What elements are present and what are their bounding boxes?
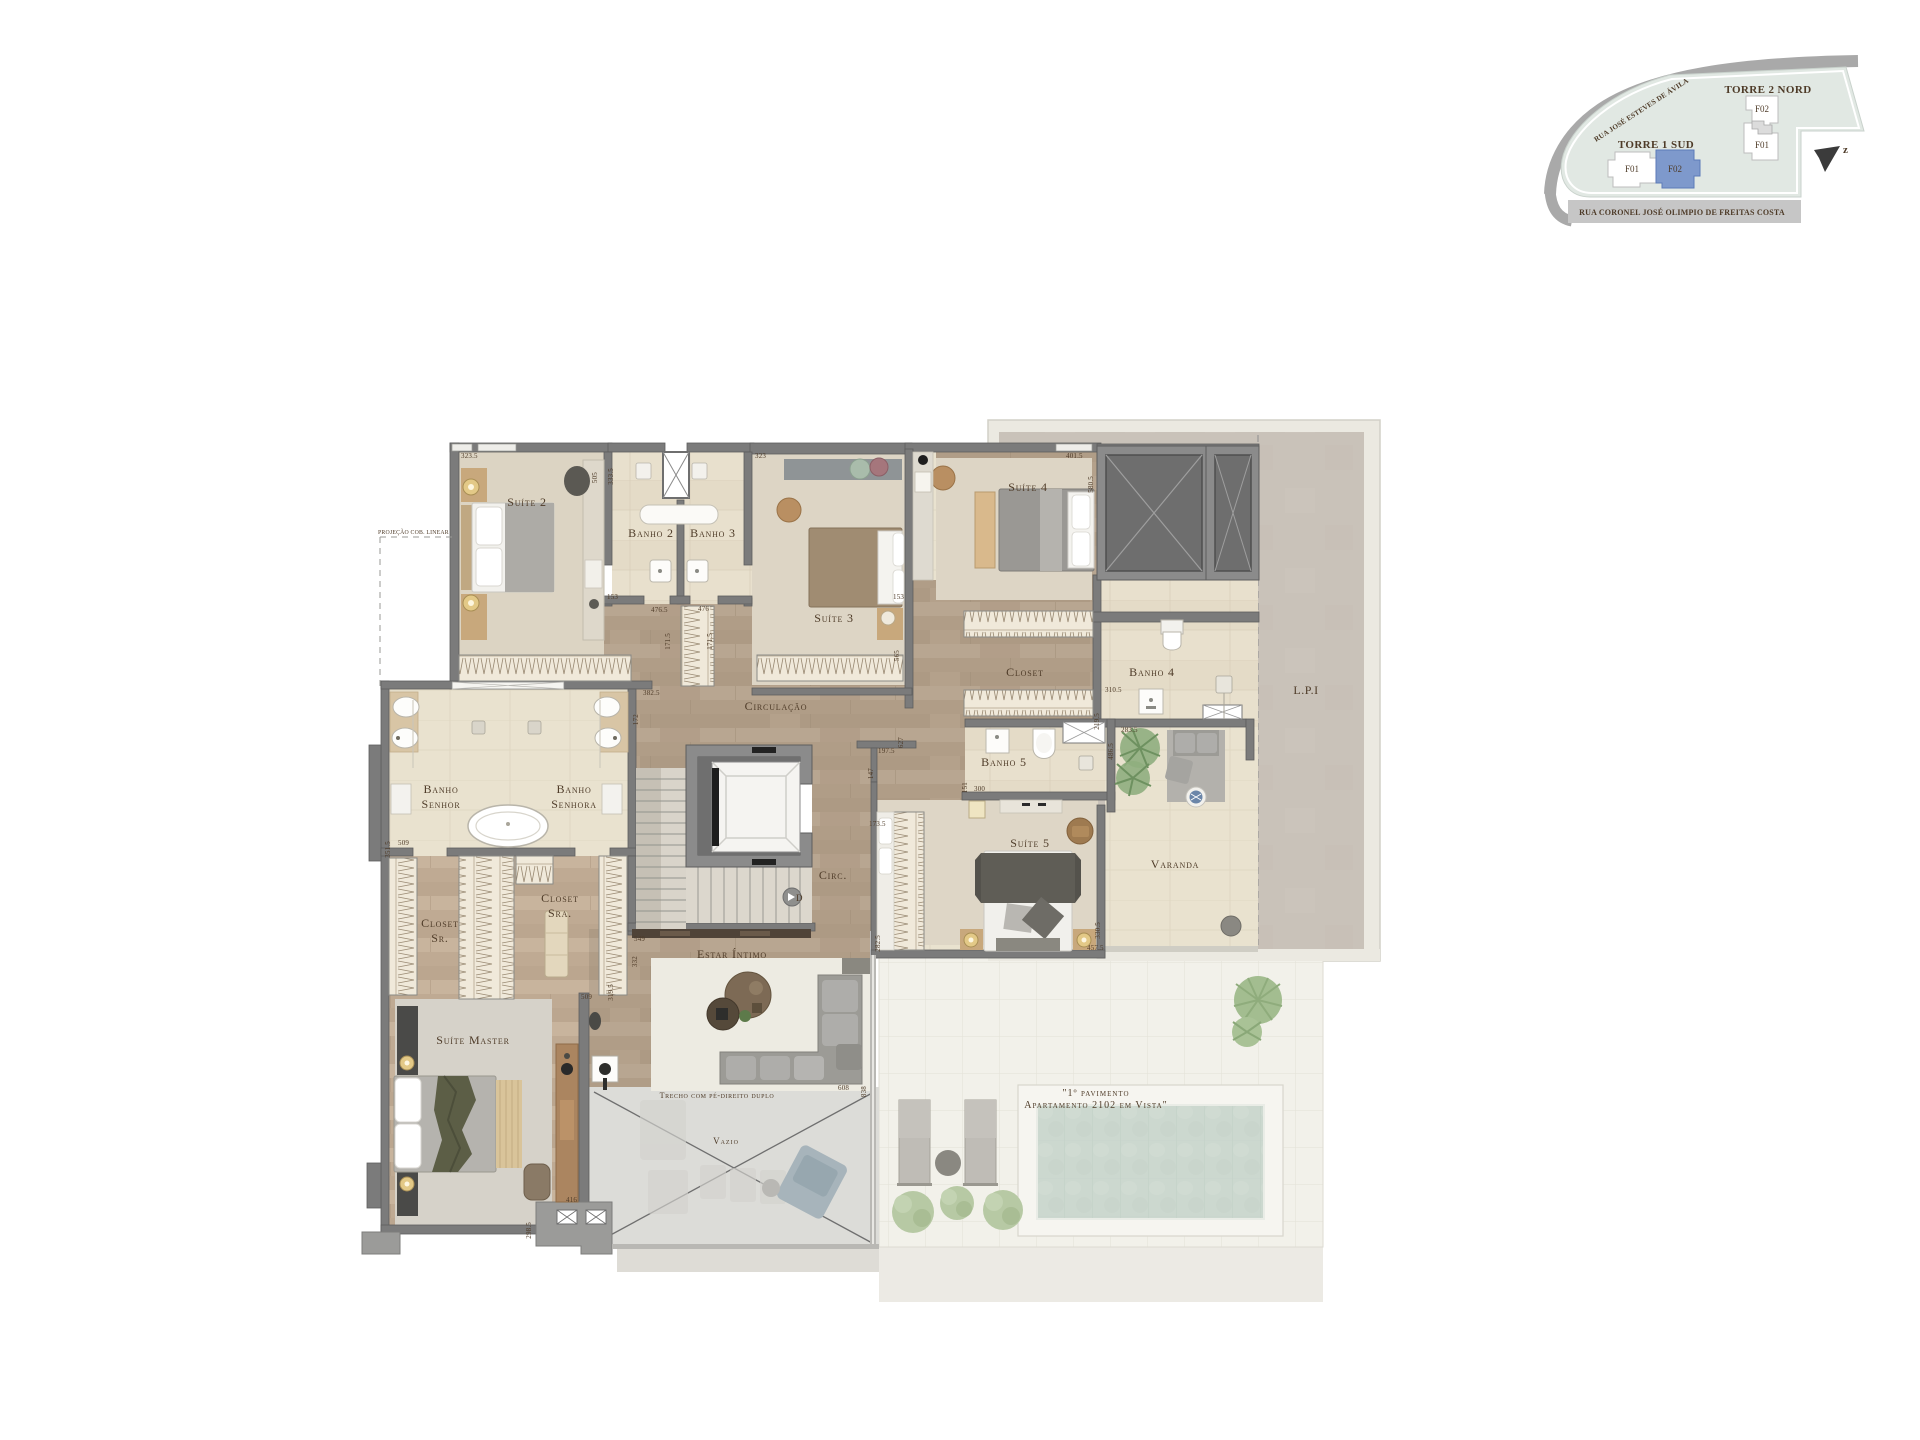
- svg-text:Apartamento 2102 em Vista": Apartamento 2102 em Vista": [1024, 1100, 1167, 1111]
- svg-text:Banho: Banho: [423, 782, 458, 796]
- svg-text:457.5: 457.5: [1087, 944, 1104, 952]
- svg-text:351.5: 351.5: [384, 841, 392, 858]
- svg-text:310.5: 310.5: [1105, 686, 1122, 694]
- svg-text:416: 416: [566, 1196, 577, 1204]
- svg-text:171.5: 171.5: [664, 633, 672, 650]
- svg-text:TORRE 2 NORD: TORRE 2 NORD: [1724, 84, 1811, 96]
- svg-text:D: D: [796, 893, 803, 903]
- svg-text:Sra.: Sra.: [548, 906, 572, 920]
- svg-text:Closet: Closet: [541, 891, 579, 905]
- svg-text:TORRE 1 SUD: TORRE 1 SUD: [1618, 139, 1694, 151]
- svg-text:549: 549: [634, 935, 645, 943]
- svg-text:PROJEÇÃO COB. LINEAR: PROJEÇÃO COB. LINEAR: [378, 528, 449, 536]
- svg-text:F02: F02: [1755, 104, 1769, 114]
- svg-text:300: 300: [974, 785, 985, 793]
- svg-text:151: 151: [961, 782, 969, 793]
- svg-text:476: 476: [698, 605, 709, 613]
- svg-text:L.P.I: L.P.I: [1293, 683, 1318, 697]
- svg-text:282.5: 282.5: [874, 935, 882, 952]
- svg-text:173.5: 173.5: [869, 820, 886, 828]
- svg-text:Circulação: Circulação: [745, 699, 808, 713]
- svg-text:z: z: [1843, 144, 1848, 156]
- svg-text:Senhor: Senhor: [421, 797, 460, 811]
- svg-text:Banho 2: Banho 2: [628, 526, 674, 540]
- svg-text:Suíte 4: Suíte 4: [1008, 480, 1048, 494]
- svg-text:171.5: 171.5: [706, 633, 714, 650]
- svg-text:580.5: 580.5: [1087, 476, 1095, 493]
- svg-text:RUA CORONEL JOSÉ OLIMPIO DE FR: RUA CORONEL JOSÉ OLIMPIO DE FREITAS COST…: [1579, 207, 1785, 217]
- svg-text:Banho 5: Banho 5: [981, 755, 1027, 769]
- svg-text:476.5: 476.5: [651, 606, 668, 614]
- svg-text:Varanda: Varanda: [1151, 857, 1200, 871]
- svg-text:323: 323: [755, 452, 766, 460]
- svg-text:382.5: 382.5: [643, 689, 660, 697]
- svg-text:Senhora: Senhora: [551, 797, 597, 811]
- svg-text:319.5: 319.5: [607, 984, 615, 1001]
- svg-text:147: 147: [867, 768, 875, 779]
- svg-text:Estar Íntimo: Estar Íntimo: [697, 947, 767, 961]
- svg-text:Closet: Closet: [1006, 665, 1044, 679]
- svg-text:F01: F01: [1625, 164, 1639, 174]
- svg-text:Banho 4: Banho 4: [1129, 665, 1175, 679]
- svg-text:838: 838: [860, 1086, 868, 1097]
- svg-text:"1º pavimento: "1º pavimento: [1062, 1088, 1129, 1099]
- svg-text:298.5: 298.5: [525, 1222, 533, 1239]
- svg-text:219.5: 219.5: [1093, 713, 1101, 730]
- svg-text:153: 153: [607, 593, 618, 601]
- svg-text:Closet: Closet: [421, 916, 459, 930]
- svg-text:Suíte 3: Suíte 3: [814, 611, 854, 625]
- svg-text:153: 153: [893, 593, 904, 601]
- svg-text:509: 509: [398, 839, 409, 847]
- svg-text:401.5: 401.5: [1066, 452, 1083, 460]
- svg-text:Banho 3: Banho 3: [690, 526, 736, 540]
- svg-text:283.5: 283.5: [1121, 726, 1138, 734]
- svg-text:Banho: Banho: [556, 782, 591, 796]
- svg-text:F02: F02: [1668, 164, 1682, 174]
- svg-text:Sr.: Sr.: [431, 931, 448, 945]
- svg-text:Trecho com pé-direito duplo: Trecho com pé-direito duplo: [660, 1091, 775, 1100]
- svg-text:Suíte 2: Suíte 2: [507, 495, 547, 509]
- svg-text:F01: F01: [1755, 140, 1769, 150]
- svg-text:Suíte Master: Suíte Master: [436, 1033, 510, 1047]
- svg-text:486.5: 486.5: [1107, 743, 1115, 760]
- svg-text:509: 509: [581, 993, 592, 1001]
- svg-text:323.5: 323.5: [461, 452, 478, 460]
- svg-text:Circ.: Circ.: [819, 868, 847, 882]
- svg-text:197.5: 197.5: [878, 747, 895, 755]
- svg-text:565: 565: [893, 650, 901, 661]
- svg-text:505: 505: [591, 472, 599, 483]
- svg-text:Suíte 5: Suíte 5: [1010, 836, 1050, 850]
- svg-text:333.5: 333.5: [607, 468, 615, 485]
- svg-text:Vazio: Vazio: [713, 1136, 739, 1146]
- svg-text:330.5: 330.5: [1094, 922, 1102, 939]
- svg-text:627: 627: [897, 737, 905, 748]
- svg-text:332: 332: [631, 956, 639, 967]
- svg-text:172: 172: [632, 714, 640, 725]
- svg-text:608: 608: [838, 1084, 849, 1092]
